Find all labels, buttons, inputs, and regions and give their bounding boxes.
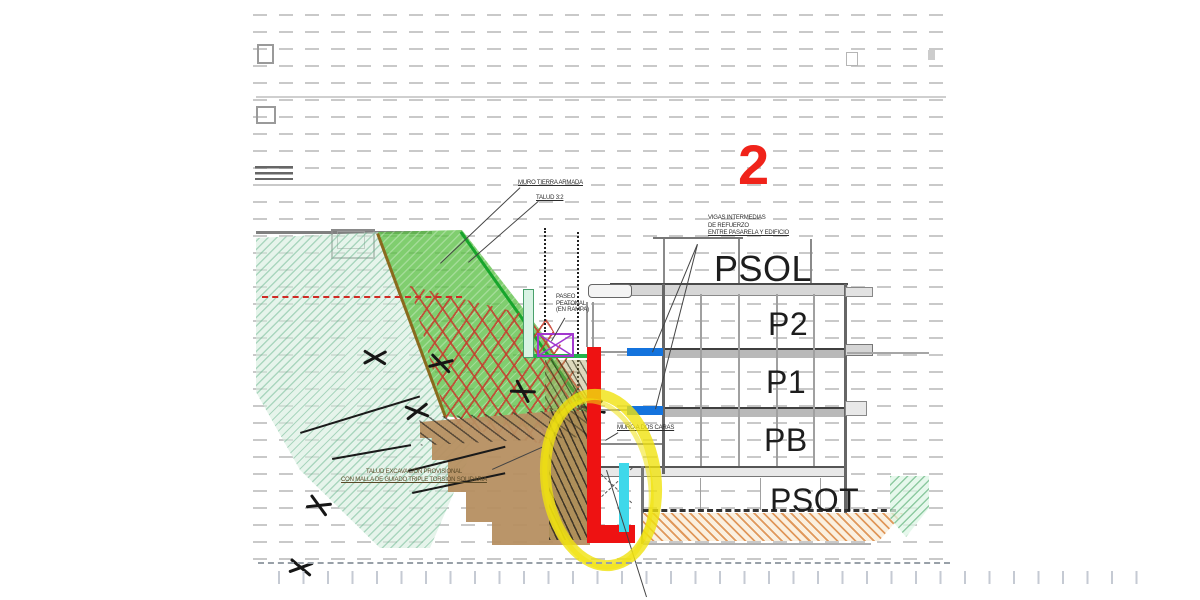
building-right-wall [844, 284, 847, 515]
red-dashed-level-line [262, 296, 462, 298]
floor-label-p2: P2 [768, 306, 808, 343]
balcony-stub [845, 401, 867, 416]
floor-label-psol: PSOL [714, 248, 812, 290]
dotted-axis-line [544, 228, 546, 332]
floor-label-pb: PB [764, 422, 808, 459]
grade-line-mid [256, 184, 470, 186]
pergola-post [663, 239, 665, 284]
drawing-canvas: MURO TIERRA ARMADA TALUD 3:2 VIGAS INTER… [0, 0, 1200, 600]
pasarela-cap [588, 284, 632, 298]
purple-detail-box [537, 333, 574, 357]
basement-column [760, 478, 761, 510]
balcony-stub [845, 344, 873, 356]
floor-slab-p1 [663, 407, 845, 417]
floor-slab-p2 [663, 348, 845, 358]
label-talud-excavacion: TALUD EXCAVACIÓN PROVISIONAL CON MALLA D… [338, 469, 490, 484]
section-marker-icon [846, 52, 858, 66]
section-marker-icon [257, 44, 274, 64]
bottom-dashed-line [258, 562, 950, 564]
building-column [738, 294, 740, 466]
formwork-line [592, 302, 594, 347]
label-vigas-intermedias: VIGAS INTERMEDIAS DE REFUERZO ENTRE PASA… [708, 215, 789, 238]
viga-refuerzo-blue [627, 348, 663, 356]
foundation-bottom-line [643, 543, 871, 545]
label-talud: TALUD 3:2 [536, 195, 563, 203]
section-marker-icon [256, 106, 276, 124]
balcony-stub [845, 287, 873, 297]
label-muro-tierra-armada: MURO TIERRA ARMADA [518, 180, 583, 188]
scale-tick-row [278, 571, 1150, 584]
red-marker-number: 2 [738, 132, 769, 197]
section-marker-icon [928, 50, 935, 60]
label-paseo-peatonal: PASEO PEATONAL (EN RAMPA) [556, 294, 589, 314]
level-extension-line [847, 352, 929, 354]
building-column [700, 294, 702, 466]
wall-section-bars-icon [255, 166, 293, 180]
floor-label-psot: PSOT [770, 482, 859, 519]
basement-column [700, 478, 701, 510]
teal-column-detail [523, 289, 534, 358]
building-column [813, 294, 815, 466]
grade-line-upper [256, 96, 946, 98]
yellow-highlight-ellipse [535, 385, 675, 585]
soil-anchor-icon [362, 344, 388, 370]
floor-label-p1: P1 [766, 364, 806, 401]
